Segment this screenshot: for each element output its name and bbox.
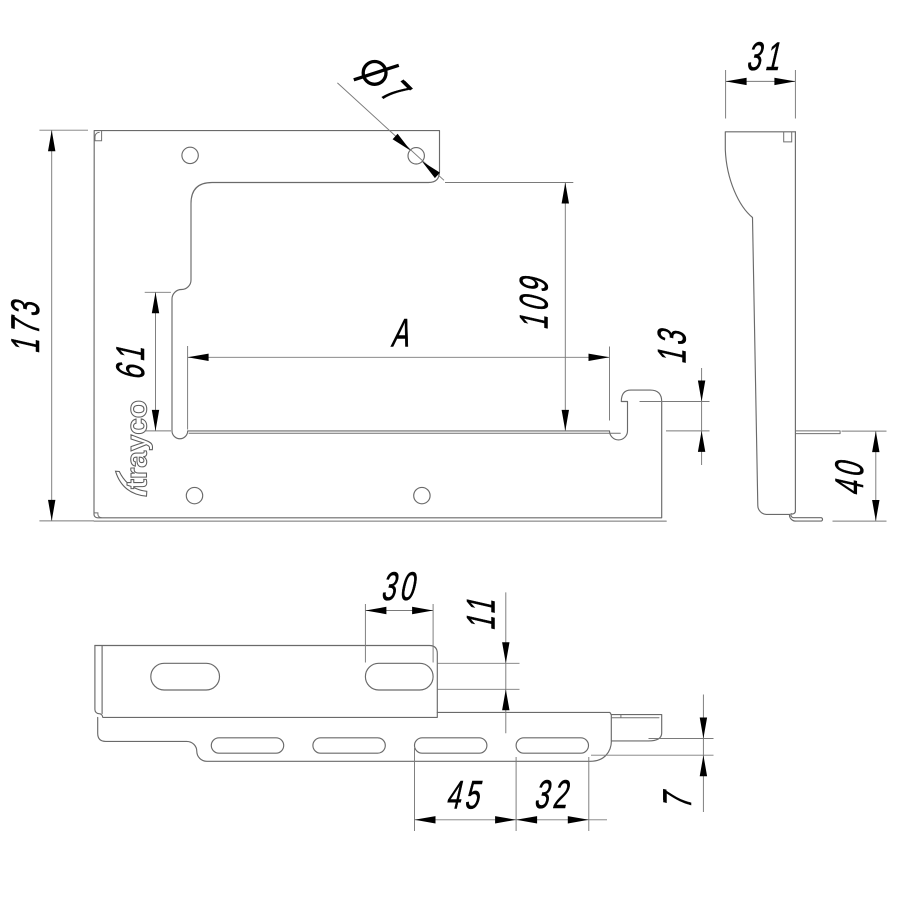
svg-text:7: 7 (370, 75, 421, 112)
svg-text:31: 31 (744, 35, 791, 79)
svg-text:32: 32 (531, 773, 578, 817)
svg-text:13: 13 (651, 320, 695, 367)
svg-text:11: 11 (459, 588, 503, 633)
svg-text:trayco: trayco (121, 400, 154, 489)
svg-text:61: 61 (109, 336, 153, 383)
svg-text:7: 7 (656, 783, 700, 812)
svg-text:A: A (389, 311, 420, 355)
svg-text:173: 173 (4, 291, 48, 356)
svg-text:45: 45 (443, 774, 490, 818)
svg-text:30: 30 (378, 565, 425, 609)
svg-text:40: 40 (828, 451, 872, 498)
svg-text:109: 109 (513, 267, 557, 332)
